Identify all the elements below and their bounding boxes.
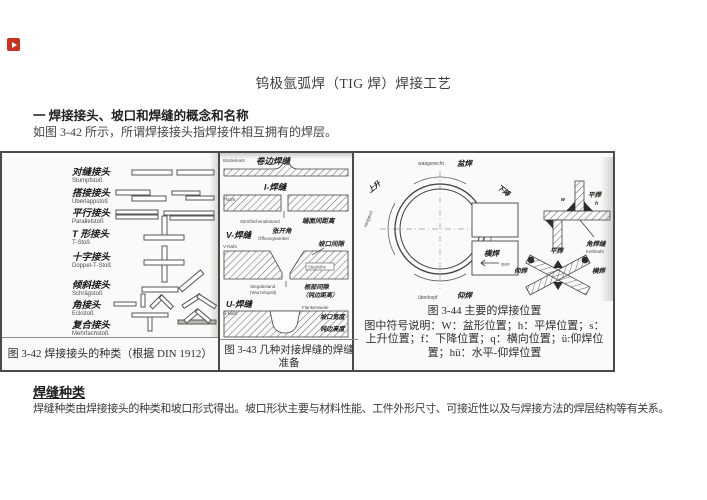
fillet-label-zh: 平焊: [588, 191, 603, 199]
steg-label-de: Steghöhe: [308, 265, 327, 270]
joint-label-zh: 平行接头: [72, 207, 112, 219]
pos-bottom-de: überkopf: [418, 295, 438, 301]
figure-cell-joint-types: 对缝接头 Stumpfstoß 搭接接头 Überlappstoß 平行接头 P…: [2, 153, 220, 370]
intro-text: 如图 3-42 所示，所谓焊接接头指焊接件相互拥有的焊层。: [33, 123, 337, 140]
figure-table: 对缝接头 Stumpfstoß 搭接接头 Überlappstoß 平行接头 P…: [0, 151, 615, 372]
joint-label-zh: T 形接头: [72, 228, 110, 240]
joint-label-zh: 十字接头: [72, 251, 112, 263]
weld-types-heading: 焊缝种类: [33, 382, 85, 401]
i-weld-right: [288, 195, 348, 211]
joint-label-de: Parallelstoß: [72, 219, 104, 225]
u-label-zh: U-焊缝: [226, 299, 253, 309]
figure-caption-3-42: 图 3-42 焊接接头的种类（根据 DIN 1912）: [2, 337, 218, 361]
weld-positions-figure: waagerecht 盆焊 上升 steigend 下降 fallend übe…: [354, 153, 615, 305]
root-label-zh2: （钝边距离）: [302, 291, 338, 299]
x-top-zh: 平焊: [550, 247, 565, 255]
document-page: 钨极氩弧焊（TIG 焊）焊接工艺 一 焊接接头、坡口和焊缝的概念和名称 如图 3…: [0, 0, 707, 500]
bordel-label-de: Bördelnaht: [223, 158, 246, 163]
weld-prep-figure: Bördelnaht 卷边焊缝 I-焊缝 I-Naht Stirnflächen…: [220, 153, 352, 339]
x-left-zh: 仰焊: [514, 267, 529, 275]
v-weld-left: [224, 251, 282, 279]
weld-types-body: 焊缝种类由焊接接头的种类和坡口形式得出。坡口形状主要与材料性能、工件外形尺寸、可…: [33, 400, 669, 416]
joint-label-zh: 搭接接头: [72, 187, 112, 199]
gap-label-zh: 端面间距离: [302, 217, 336, 225]
pos-bottom-zh: 仰焊: [457, 291, 473, 300]
joint-label-zh: 对缝接头: [72, 166, 112, 178]
joint-label-zh: 角接头: [72, 299, 102, 311]
quer-label-de: quer: [501, 262, 511, 267]
joint-label-zh: 倾斜接头: [72, 279, 112, 291]
h-letter: h: [595, 201, 598, 207]
root-label-de2: (Wurzelspalt): [250, 290, 277, 295]
joint-label-de: Eckstoß: [72, 311, 94, 317]
joint-types-figure: 对缝接头 Stumpfstoß 搭接接头 Überlappstoß 平行接头 P…: [2, 153, 218, 337]
pos-left-zh: 上升: [366, 179, 383, 195]
butt-joint-diagram: [132, 170, 214, 175]
w-letter: w: [561, 197, 566, 203]
pos-left-de: steigend: [363, 210, 374, 228]
figure-cell-weld-prep: Bördelnaht 卷边焊缝 I-焊缝 I-Naht Stirnflächen…: [220, 153, 354, 370]
multiple-joint-diagram: [132, 309, 216, 331]
figure-caption-3-44: 图 3-44 主要的焊接位置 图中符号说明：W：盆形位置；h：平焊位置；s：上升…: [354, 305, 615, 360]
root-label-de1: Stegabstand: [250, 284, 276, 289]
joint-label-de: Überlappstoß: [72, 198, 108, 205]
page-title: 钨极氩弧焊（TIG 焊）焊接工艺: [0, 72, 707, 92]
i-label-zh: I-焊缝: [264, 182, 288, 192]
x-joint-diagram: 平焊 仰焊 横焊: [514, 247, 607, 295]
flank-label-zh: 坡口宽度: [320, 313, 347, 321]
i-weld-left: [224, 195, 281, 211]
flank-label-de: Flankenweite: [302, 305, 329, 310]
x-right-zh: 横焊: [592, 267, 607, 275]
gap-label-de: Stirnflächenabstand: [240, 219, 280, 224]
joint-label-de: Schrägstoß: [72, 291, 103, 297]
v-label-zh: V-焊缝: [226, 230, 253, 240]
pos-top-de: waagerecht: [418, 161, 444, 167]
blunt-label-zh: 钝边高度: [320, 325, 347, 333]
oblique-joint-diagram: [142, 270, 204, 292]
kehl-label-zh: 角焊缝: [586, 240, 607, 248]
angle-label-de: Öffnungswinkel: [258, 235, 289, 241]
corner-joint-diagram: [114, 294, 217, 310]
pos-top-zh: 盆焊: [457, 159, 473, 168]
caption-3-44-title: 图 3-44 主要的焊接位置: [359, 305, 610, 319]
joint-label-de: T-Stoß: [72, 240, 90, 246]
figure-caption-3-43: 图 3-43 几种对接焊缝的焊缝准备: [220, 339, 358, 370]
pos-right-zh: 下降: [495, 183, 512, 199]
joint-label-de: Doppel-T-Stoß: [72, 263, 111, 269]
lap-joint-diagram: [116, 190, 214, 201]
kehl-label-de: Kehlnaht: [586, 249, 605, 254]
root-label-zh1: 根部间隙: [304, 283, 330, 291]
joint-label-zh: 复合接头: [71, 319, 112, 331]
section-heading: 一 焊接接头、坡口和焊缝的概念和名称: [33, 105, 249, 124]
angle-label-zh: 张开角: [272, 227, 292, 235]
figure-cell-weld-positions: waagerecht 盆焊 上升 steigend 下降 fallend übe…: [354, 153, 615, 370]
v-label-de: V-Naht: [223, 244, 238, 249]
caption-3-44-legend: 图中符号说明：W：盆形位置；h：平焊位置；s：上升位置；f：下降位置；q：横向位…: [359, 320, 610, 361]
video-watermark-icon: [7, 38, 20, 51]
fillet-joint-diagram: w h 平焊 角焊缝 Kehlnaht: [544, 181, 610, 254]
groove-label-zh: 坡口间隙: [318, 240, 346, 248]
joint-label-de: Stumpfstoß: [72, 178, 103, 184]
quer-label-zh: 横焊: [484, 249, 500, 258]
cross-joint-diagram: [144, 246, 184, 282]
